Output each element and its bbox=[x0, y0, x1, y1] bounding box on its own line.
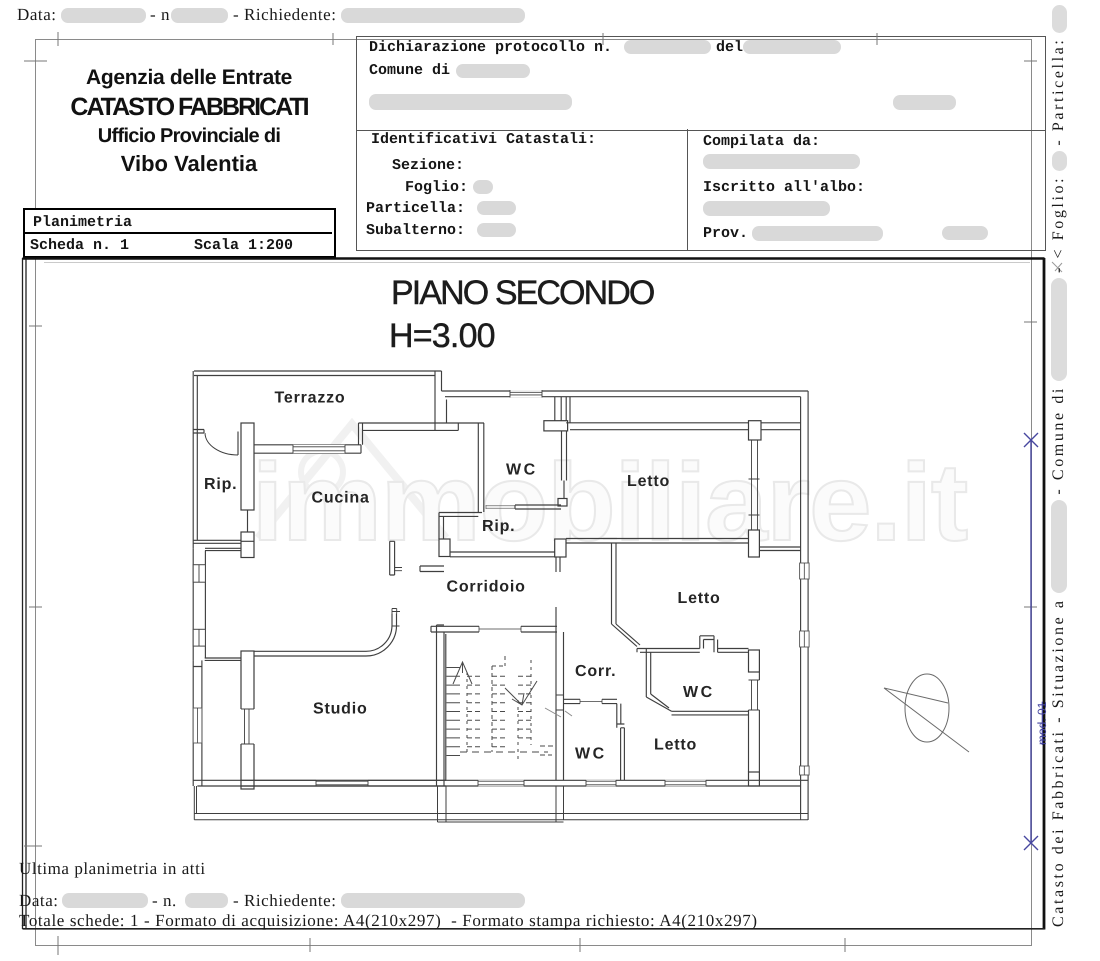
svg-text:WC: WC bbox=[683, 684, 715, 701]
svg-text:WC: WC bbox=[506, 462, 538, 479]
svg-text:Letto: Letto bbox=[678, 590, 721, 607]
svg-text:Letto: Letto bbox=[654, 737, 697, 754]
svg-text:Terrazzo: Terrazzo bbox=[275, 390, 346, 407]
svg-text:Corr.: Corr. bbox=[575, 663, 616, 680]
svg-text:Rip.: Rip. bbox=[482, 518, 515, 535]
svg-text:WC: WC bbox=[575, 746, 607, 763]
svg-text:Rip.: Rip. bbox=[204, 476, 237, 493]
svg-text:Corridoio: Corridoio bbox=[447, 579, 526, 596]
svg-text:PIANO SECONDO: PIANO SECONDO bbox=[391, 274, 654, 312]
svg-text:Letto: Letto bbox=[627, 473, 670, 490]
svg-text:H=3.00: H=3.00 bbox=[389, 317, 495, 355]
svg-text:Studio: Studio bbox=[313, 701, 368, 718]
svg-text:Cucina: Cucina bbox=[312, 490, 370, 507]
